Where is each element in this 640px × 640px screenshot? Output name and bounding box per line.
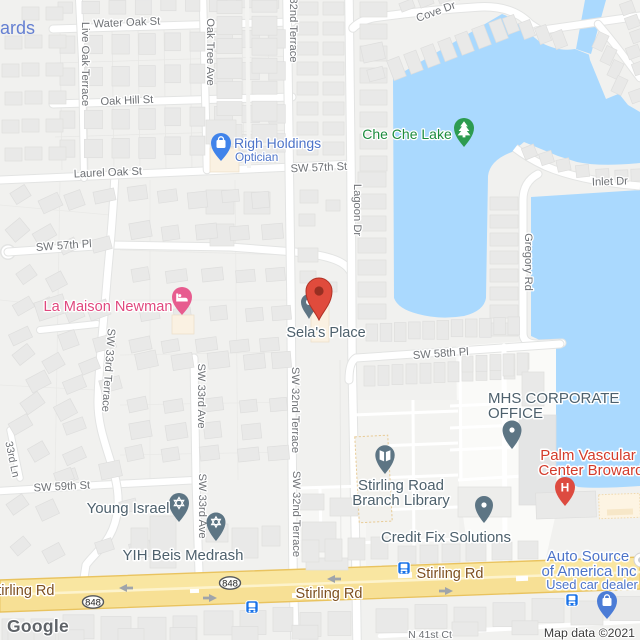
svg-text:OFFICE: OFFICE [488,405,543,422]
svg-text:SW 32nd Terrace: SW 32nd Terrace [289,367,301,453]
svg-text:Oak Tree Ave: Oak Tree Ave [204,18,216,86]
svg-text:SW 57th St: SW 57th St [290,161,348,175]
svg-text:Center Broward: Center Broward [538,462,640,479]
svg-text:YIH Beis Medrash: YIH Beis Medrash [123,547,244,564]
svg-text:Oak Hill St: Oak Hill St [100,94,154,108]
svg-text:SW 33rd Ave: SW 33rd Ave [195,363,207,428]
svg-text:Inlet Dr: Inlet Dr [592,175,629,188]
svg-text:La Maison Newman: La Maison Newman [44,299,173,315]
svg-text:Sela's Place: Sela's Place [286,325,365,341]
svg-text:Lagoon Dr: Lagoon Dr [351,184,363,237]
svg-text:Branch Library: Branch Library [352,492,450,509]
svg-text:Live Oak Terrace: Live Oak Terrace [79,22,91,106]
svg-text:N 41st Ct: N 41st Ct [408,629,452,640]
svg-text:848: 848 [222,578,238,589]
svg-text:Stirling Rd: Stirling Rd [296,586,363,602]
svg-text:SW 33rd Ave: SW 33rd Ave [196,473,208,538]
svg-text:848: 848 [85,597,101,608]
svg-text:Used car dealer: Used car dealer [546,577,638,592]
svg-text:H: H [561,481,570,495]
svg-text:Young Israel: Young Israel [87,500,170,517]
svg-text:Optician: Optician [235,150,278,164]
svg-text:Gregory Rd: Gregory Rd [522,233,534,291]
svg-text:Righ Holdings: Righ Holdings [234,135,321,151]
svg-text:Google: Google [7,616,69,636]
svg-text:ards: ards [0,18,35,38]
svg-text:32nd Terrace: 32nd Terrace [287,0,299,63]
svg-text:Credit Fix Solutions: Credit Fix Solutions [381,529,511,546]
svg-text:Che Che Lake: Che Che Lake [362,126,452,142]
svg-text:Map data ©2021: Map data ©2021 [544,626,635,640]
svg-text:Stirling Rd: Stirling Rd [0,583,54,599]
svg-text:Stirling Rd: Stirling Rd [417,566,484,582]
svg-text:SW 32nd Terrace: SW 32nd Terrace [290,471,302,557]
